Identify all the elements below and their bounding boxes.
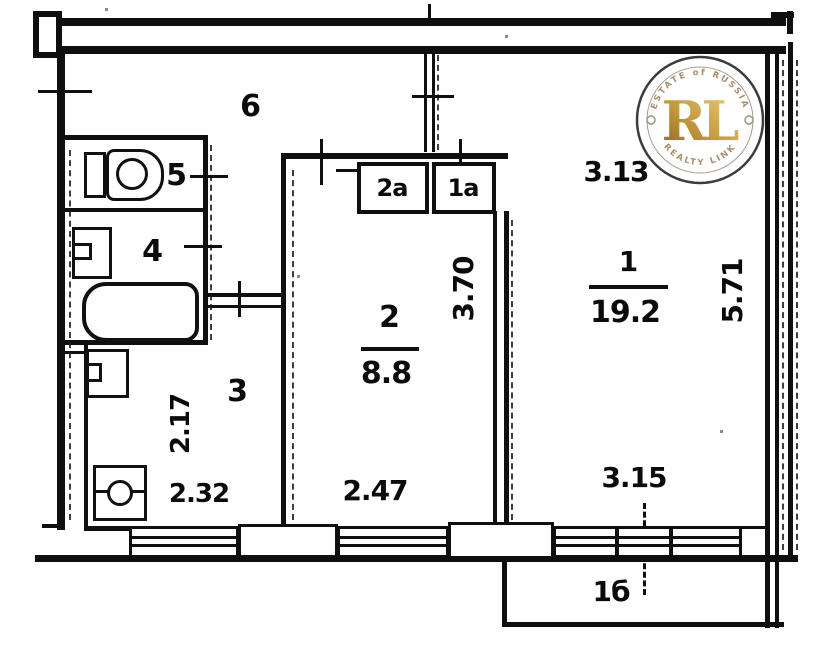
tick-top-wall-seam xyxy=(428,4,431,19)
tick-wc-door xyxy=(190,175,228,178)
scan-noise-dot xyxy=(105,8,108,11)
hatch-building-line xyxy=(796,60,798,550)
kitchen-sink-faucet xyxy=(86,363,102,382)
wall-bath-top xyxy=(65,135,208,140)
room-label-kitchen: 3 xyxy=(227,377,247,407)
closet-label-2a: 2а xyxy=(377,176,408,200)
wall-bath-right xyxy=(203,135,208,345)
wall-pier-top-line xyxy=(741,526,767,529)
room-label-wc: 5 xyxy=(166,161,186,191)
room-label-hallway: 6 xyxy=(240,92,260,122)
wall-room2-top xyxy=(281,153,508,159)
balcony-wall-bottom xyxy=(502,622,784,627)
hatch-room2-right xyxy=(511,220,513,520)
window-mullion-1 xyxy=(615,529,619,555)
wall-kitchen-bottom-seg xyxy=(84,526,132,531)
wall-top-right-mark-v xyxy=(787,11,793,34)
room1-fraction-line xyxy=(589,285,668,289)
wall-room1-room2-a xyxy=(493,211,497,530)
window-kitchen xyxy=(129,526,239,558)
wall-partition-b xyxy=(432,52,435,152)
wall-room1-room2-b xyxy=(504,211,509,530)
scan-noise-dot xyxy=(297,275,300,278)
wall-corridor-a xyxy=(203,293,283,297)
room2-fraction-line xyxy=(361,347,419,351)
tick-kitchen-door xyxy=(238,281,241,317)
tick-left-wall xyxy=(38,90,92,93)
hatch-left-wall xyxy=(69,150,71,520)
wall-top-outer-upper xyxy=(59,18,786,26)
scan-noise-dot xyxy=(720,430,723,433)
dim-room1-window: 3.15 xyxy=(601,464,666,492)
wall-partition-a xyxy=(424,52,427,152)
window-room1 xyxy=(553,526,742,558)
wall-right-building-line xyxy=(788,42,793,562)
toilet-tank xyxy=(84,152,106,198)
wall-top-outer-lower xyxy=(59,46,786,54)
hatch-right-wall xyxy=(782,60,784,550)
room1-area: 19.2 xyxy=(590,298,660,328)
scan-noise-dot xyxy=(505,35,508,38)
bathtub xyxy=(82,282,199,342)
wall-corridor-b xyxy=(203,305,283,308)
wall-kitchen-connector xyxy=(57,351,85,354)
stove-burner xyxy=(107,480,133,506)
wall-pier-1 xyxy=(238,524,338,558)
tick-bath-door xyxy=(184,245,222,248)
dim-room1-depth: 5.71 xyxy=(719,258,747,323)
dim-room2-width: 2.47 xyxy=(342,477,407,505)
closet-label-1a: 1а xyxy=(448,176,479,200)
window-mullion-2 xyxy=(669,529,673,555)
room-label-bathroom: 4 xyxy=(142,237,162,267)
balcony-wall-left xyxy=(502,560,507,626)
wall-top-left-cap xyxy=(33,11,62,58)
room2-number: 2 xyxy=(379,303,399,333)
wall-wc-bath-divider xyxy=(65,208,203,212)
balcony-door-pier xyxy=(448,522,554,559)
bathroom-sink-faucet xyxy=(72,243,92,260)
balcony-label: 1б xyxy=(592,578,629,606)
tick-room2-door xyxy=(320,139,323,185)
dim-room2-depth: 3.70 xyxy=(450,256,478,321)
watermark-logo: ESTATE of RUSSIA RL REALTY LINK xyxy=(634,54,766,186)
room2-area: 8.8 xyxy=(361,359,411,389)
dim-kitchen-width: 2.32 xyxy=(169,481,229,507)
tick-room1-door xyxy=(412,95,454,98)
wall-room2-left xyxy=(281,153,286,528)
hatch-room2-left xyxy=(292,170,294,520)
watermark-monogram: RL xyxy=(662,89,739,153)
floor-plan: 6 5 4 3 2а 1а 1б 2 8.8 1 19.2 3.13 5.71 … xyxy=(0,0,837,650)
dim-kitchen-depth: 2.17 xyxy=(168,394,194,454)
window-room2 xyxy=(337,526,449,558)
toilet-seat-circle xyxy=(116,158,148,190)
room1-number: 1 xyxy=(619,248,637,276)
wall-left-foot xyxy=(42,524,60,528)
wall-left-outer xyxy=(57,52,65,530)
wall-right-inner-b xyxy=(775,52,779,628)
hatch-partition xyxy=(437,55,439,150)
